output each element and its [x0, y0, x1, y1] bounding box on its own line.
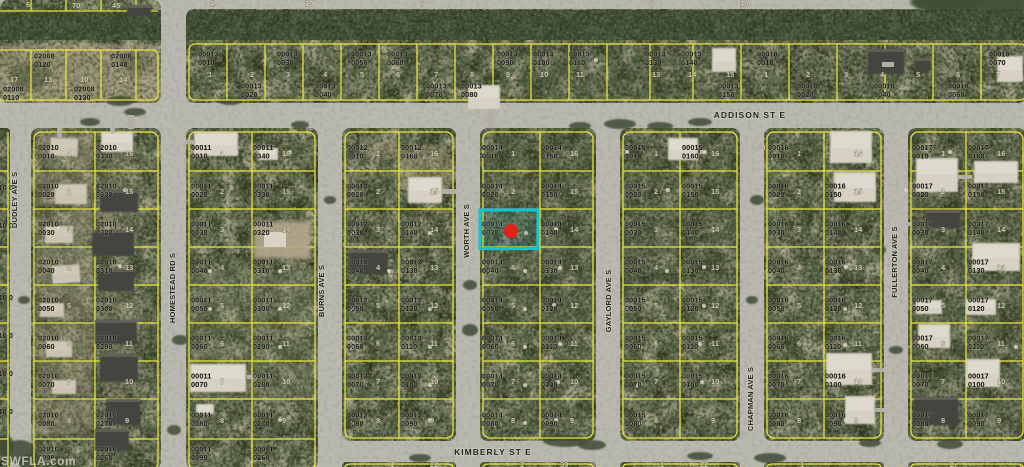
svg-text:0010: 0010	[38, 151, 55, 160]
svg-text:0010: 0010	[191, 151, 208, 160]
svg-text:0060: 0060	[948, 90, 965, 99]
svg-text:11: 11	[576, 70, 584, 79]
svg-text:9: 9	[570, 416, 574, 425]
svg-text:0010: 0010	[482, 151, 499, 160]
svg-text:0040: 0040	[625, 266, 642, 275]
svg-text:0030: 0030	[347, 228, 364, 237]
svg-text:2: 2	[376, 187, 380, 196]
svg-text:0030: 0030	[768, 228, 785, 237]
svg-text:16: 16	[711, 149, 719, 158]
svg-text:0080: 0080	[191, 419, 208, 428]
svg-text:6: 6	[941, 339, 945, 348]
svg-text:13: 13	[711, 263, 719, 272]
svg-text:3: 3	[376, 225, 380, 234]
svg-text:0120: 0120	[401, 304, 418, 313]
svg-text:0110: 0110	[569, 58, 585, 67]
svg-text:2: 2	[511, 187, 515, 196]
svg-text:15: 15	[997, 187, 1005, 196]
svg-text:30: 30	[560, 460, 568, 467]
svg-text:0060: 0060	[38, 342, 55, 351]
svg-text:0060: 0060	[191, 342, 208, 351]
svg-text:0050: 0050	[768, 304, 785, 313]
svg-text:0310: 0310	[253, 266, 270, 275]
svg-text:7: 7	[376, 377, 380, 386]
svg-text:9: 9	[997, 416, 1001, 425]
svg-text:11: 11	[570, 339, 578, 348]
svg-text:14: 14	[119, 75, 128, 84]
svg-text:0020: 0020	[191, 190, 208, 199]
svg-text:0090: 0090	[401, 419, 418, 428]
svg-text:0090: 0090	[968, 419, 985, 428]
svg-text:7: 7	[67, 377, 71, 386]
svg-text:0020: 0020	[38, 190, 55, 199]
svg-text:0300: 0300	[253, 304, 270, 313]
svg-text:11: 11	[125, 339, 133, 348]
svg-text:0160: 0160	[968, 151, 985, 160]
svg-text:0060: 0060	[347, 342, 364, 351]
svg-text:15: 15	[726, 70, 734, 79]
svg-text:13: 13	[125, 263, 133, 272]
svg-text:0120: 0120	[34, 60, 51, 69]
svg-text:70: 70	[72, 1, 80, 10]
svg-text:9: 9	[125, 416, 129, 425]
svg-text:0320: 0320	[96, 228, 113, 237]
svg-text:0080: 0080	[347, 419, 364, 428]
svg-text:15: 15	[282, 187, 290, 196]
svg-text:0120: 0120	[825, 304, 842, 313]
svg-text:6: 6	[420, 0, 424, 8]
svg-text:0080: 0080	[38, 419, 55, 428]
svg-text:13: 13	[997, 263, 1005, 272]
svg-text:0290: 0290	[253, 342, 270, 351]
svg-text:0040: 0040	[347, 266, 364, 275]
svg-text:02010 0: 02010 0	[0, 331, 13, 340]
svg-text:0040: 0040	[912, 266, 929, 275]
svg-text:16: 16	[997, 149, 1005, 158]
svg-text:10: 10	[570, 377, 578, 386]
svg-text:0130: 0130	[401, 266, 418, 275]
svg-text:0140: 0140	[968, 228, 985, 237]
svg-text:8: 8	[67, 416, 71, 425]
svg-text:1: 1	[660, 460, 664, 467]
svg-text:22: 22	[700, 460, 708, 467]
svg-text:0050: 0050	[38, 304, 55, 313]
svg-text:0010: 0010	[768, 151, 785, 160]
svg-text:0050: 0050	[912, 304, 929, 313]
svg-text:11: 11	[282, 339, 290, 348]
svg-text:6: 6	[511, 339, 515, 348]
svg-text:DUDLEY AVE S: DUDLEY AVE S	[10, 172, 19, 228]
svg-text:1: 1	[67, 149, 71, 158]
svg-text:0010: 0010	[198, 58, 215, 67]
svg-text:0270: 0270	[253, 419, 270, 428]
svg-text:0140: 0140	[541, 228, 558, 237]
svg-text:0130: 0130	[825, 266, 842, 275]
svg-text:8: 8	[650, 0, 654, 8]
svg-text:9: 9	[711, 416, 715, 425]
svg-text:0040: 0040	[768, 266, 785, 275]
svg-text:0310: 0310	[96, 266, 113, 275]
svg-text:14: 14	[125, 225, 134, 234]
svg-text:8: 8	[470, 70, 474, 79]
svg-text:0140: 0140	[825, 228, 842, 237]
svg-text:0330: 0330	[96, 190, 113, 199]
svg-text:45: 45	[112, 1, 120, 10]
svg-text:10: 10	[430, 377, 438, 386]
svg-text:6: 6	[797, 339, 801, 348]
svg-text:KIMBERLY ST E: KIMBERLY ST E	[454, 447, 532, 457]
svg-text:2: 2	[67, 187, 71, 196]
svg-text:0260: 0260	[96, 453, 113, 462]
svg-text:7: 7	[797, 377, 801, 386]
svg-text:6: 6	[26, 0, 30, 9]
svg-text:0090: 0090	[541, 419, 558, 428]
svg-text:0160: 0160	[401, 151, 418, 160]
svg-text:0050: 0050	[351, 58, 368, 67]
svg-text:5: 5	[67, 301, 71, 310]
svg-text:0080: 0080	[482, 419, 499, 428]
svg-text:0260: 0260	[253, 453, 270, 462]
svg-text:10: 10	[282, 377, 290, 386]
svg-text:ADDISON ST E: ADDISON ST E	[714, 110, 786, 120]
svg-text:9: 9	[506, 70, 510, 79]
svg-text:0020: 0020	[482, 190, 499, 199]
svg-text:0030: 0030	[912, 228, 929, 237]
svg-text:1: 1	[390, 460, 394, 467]
svg-text:0120: 0120	[682, 304, 699, 313]
svg-text:1: 1	[220, 149, 224, 158]
svg-text:9: 9	[854, 416, 858, 425]
svg-text:0100: 0100	[682, 380, 699, 389]
svg-text:0070: 0070	[191, 380, 208, 389]
svg-text:0100: 0100	[533, 58, 550, 67]
svg-text:0020: 0020	[912, 190, 929, 199]
svg-text:0130: 0130	[645, 58, 662, 67]
svg-text:10: 10	[305, 0, 313, 8]
svg-text:0020: 0020	[347, 190, 364, 199]
svg-text:5: 5	[654, 301, 658, 310]
svg-text:0160: 0160	[682, 151, 699, 160]
svg-text:14: 14	[854, 225, 863, 234]
svg-text:0090: 0090	[497, 58, 514, 67]
svg-text:0030: 0030	[625, 228, 642, 237]
svg-text:11: 11	[997, 339, 1005, 348]
svg-text:15: 15	[570, 187, 578, 196]
svg-text:0010: 0010	[625, 151, 642, 160]
svg-text:0090: 0090	[825, 419, 842, 428]
svg-text:GAYLORD AVE S: GAYLORD AVE S	[604, 270, 613, 333]
svg-text:0070: 0070	[347, 380, 364, 389]
svg-text:3: 3	[67, 225, 71, 234]
svg-text:9: 9	[430, 416, 434, 425]
svg-text:1: 1	[764, 70, 768, 79]
svg-text:0060: 0060	[387, 58, 404, 67]
svg-text:1: 1	[654, 149, 658, 158]
svg-text:17: 17	[10, 75, 18, 84]
svg-text:0150: 0150	[718, 90, 735, 99]
svg-text:8: 8	[220, 416, 224, 425]
svg-text:0030: 0030	[277, 58, 294, 67]
svg-text:0340: 0340	[96, 151, 113, 160]
svg-text:0050: 0050	[191, 304, 208, 313]
svg-text:3: 3	[220, 225, 224, 234]
svg-text:10: 10	[740, 0, 748, 8]
svg-text:9: 9	[282, 416, 286, 425]
svg-text:14: 14	[282, 225, 291, 234]
svg-text:1: 1	[511, 149, 515, 158]
svg-text:5: 5	[220, 301, 224, 310]
svg-text:7: 7	[996, 70, 1000, 79]
svg-text:0080: 0080	[461, 90, 478, 99]
svg-text:7: 7	[220, 377, 224, 386]
svg-text:3: 3	[797, 225, 801, 234]
svg-text:6: 6	[220, 339, 224, 348]
svg-text:5: 5	[941, 301, 945, 310]
svg-text:10: 10	[997, 377, 1005, 386]
svg-text:2: 2	[950, 460, 954, 467]
svg-text:14: 14	[688, 70, 697, 79]
svg-text:0060: 0060	[912, 342, 929, 351]
svg-text:1: 1	[208, 70, 212, 79]
svg-text:11: 11	[430, 339, 438, 348]
svg-text:5: 5	[360, 70, 364, 79]
svg-text:12: 12	[570, 301, 578, 310]
svg-text:5: 5	[376, 301, 380, 310]
svg-text:0120: 0120	[968, 304, 985, 313]
svg-text:3: 3	[286, 70, 290, 79]
svg-text:5: 5	[511, 301, 515, 310]
svg-text:5: 5	[797, 301, 801, 310]
svg-text:0070: 0070	[482, 380, 499, 389]
svg-text:13: 13	[282, 263, 290, 272]
svg-text:12: 12	[125, 301, 133, 310]
svg-text:0140: 0140	[682, 228, 699, 237]
svg-text:16: 16	[282, 149, 290, 158]
svg-text:0040: 0040	[38, 266, 55, 275]
svg-text:02010 0: 02010 0	[0, 369, 13, 378]
svg-text:0110: 0110	[541, 342, 557, 351]
svg-text:0100: 0100	[401, 380, 418, 389]
svg-text:0020: 0020	[797, 90, 814, 99]
svg-text:0270: 0270	[96, 419, 113, 428]
svg-text:6: 6	[67, 339, 71, 348]
svg-text:2: 2	[797, 187, 801, 196]
svg-text:2: 2	[220, 187, 224, 196]
svg-text:12: 12	[711, 301, 719, 310]
svg-text:2: 2	[941, 187, 945, 196]
svg-text:8: 8	[376, 416, 380, 425]
svg-text:1: 1	[800, 460, 804, 467]
svg-text:2: 2	[250, 70, 254, 79]
svg-text:16: 16	[125, 149, 133, 158]
svg-text:0150: 0150	[682, 190, 699, 199]
svg-text:13: 13	[430, 263, 438, 272]
svg-text:02010 0: 02010 0	[0, 293, 13, 302]
svg-text:15: 15	[125, 187, 133, 196]
svg-text:0110: 0110	[401, 342, 417, 351]
svg-text:0050: 0050	[347, 304, 364, 313]
svg-text:0020: 0020	[768, 190, 785, 199]
svg-text:0150: 0150	[825, 190, 842, 199]
svg-text:0030: 0030	[38, 228, 55, 237]
svg-text:0130: 0130	[682, 266, 699, 275]
svg-text:HOMESTEAD RD S: HOMESTEAD RD S	[168, 253, 177, 323]
svg-text:3: 3	[941, 225, 945, 234]
svg-text:13: 13	[44, 75, 52, 84]
svg-text:0320: 0320	[253, 228, 270, 237]
svg-text:0130: 0130	[968, 266, 985, 275]
svg-text:8: 8	[654, 416, 658, 425]
svg-text:0010: 0010	[347, 151, 364, 160]
svg-text:8: 8	[797, 416, 801, 425]
svg-text:22: 22	[430, 460, 438, 467]
svg-text:12: 12	[430, 301, 438, 310]
svg-text:16: 16	[570, 149, 578, 158]
svg-text:13: 13	[652, 70, 660, 79]
svg-text:14: 14	[570, 225, 579, 234]
svg-text:1: 1	[520, 460, 524, 467]
svg-text:02010 0: 02010 0	[0, 407, 13, 416]
svg-text:16: 16	[854, 149, 862, 158]
svg-text:10: 10	[711, 377, 719, 386]
svg-text:0080: 0080	[768, 419, 785, 428]
svg-text:0040: 0040	[482, 266, 499, 275]
svg-text:0140: 0140	[401, 228, 418, 237]
svg-text:0050: 0050	[625, 304, 642, 313]
svg-text:0100: 0100	[968, 380, 985, 389]
svg-text:0340: 0340	[253, 151, 270, 160]
svg-text:15: 15	[854, 187, 862, 196]
svg-text:0020: 0020	[625, 190, 642, 199]
svg-text:2: 2	[654, 187, 658, 196]
svg-text:0070: 0070	[768, 380, 785, 389]
svg-text:10: 10	[125, 377, 133, 386]
svg-text:3: 3	[654, 225, 658, 234]
svg-text:0090: 0090	[191, 453, 208, 462]
svg-text:BURNS AVE S: BURNS AVE S	[317, 265, 326, 317]
svg-text:13: 13	[570, 263, 578, 272]
svg-text:SWFLA.com: SWFLA.com	[1, 454, 76, 467]
svg-text:12: 12	[282, 301, 290, 310]
svg-text:1: 1	[797, 149, 801, 158]
svg-text:0150: 0150	[968, 190, 985, 199]
svg-text:8: 8	[511, 416, 515, 425]
svg-text:0020: 0020	[241, 90, 258, 99]
svg-text:0080: 0080	[625, 419, 642, 428]
svg-text:0040: 0040	[874, 90, 891, 99]
svg-text:6: 6	[376, 339, 380, 348]
svg-text:2: 2	[806, 70, 810, 79]
svg-text:0040: 0040	[191, 266, 208, 275]
svg-text:0120: 0120	[541, 304, 558, 313]
svg-text:0110: 0110	[825, 342, 841, 351]
svg-text:WORTH AVE S: WORTH AVE S	[462, 204, 471, 258]
svg-text:0140: 0140	[681, 58, 698, 67]
svg-text:10: 10	[854, 377, 862, 386]
svg-text:0130: 0130	[541, 266, 558, 275]
svg-text:FULLERTON AVE S: FULLERTON AVE S	[890, 226, 899, 297]
svg-text:0100: 0100	[825, 380, 842, 389]
svg-text:0060: 0060	[768, 342, 785, 351]
svg-text:10: 10	[540, 70, 548, 79]
svg-text:5: 5	[916, 70, 920, 79]
svg-text:7: 7	[654, 377, 658, 386]
svg-text:0130: 0130	[74, 93, 91, 102]
svg-text:15: 15	[430, 187, 438, 196]
svg-text:0110: 0110	[3, 93, 19, 102]
svg-text:0300: 0300	[96, 304, 113, 313]
svg-text:0110: 0110	[968, 342, 984, 351]
svg-text:0050: 0050	[482, 304, 499, 313]
svg-text:0010: 0010	[757, 58, 774, 67]
svg-text:0110: 0110	[682, 342, 698, 351]
svg-text:6: 6	[956, 70, 960, 79]
svg-text:0140: 0140	[111, 60, 128, 69]
svg-text:14: 14	[711, 225, 720, 234]
svg-text:12: 12	[997, 301, 1005, 310]
svg-text:1: 1	[376, 149, 380, 158]
svg-text:CHAPMAN AVE S: CHAPMAN AVE S	[746, 367, 755, 431]
svg-text:0060: 0060	[625, 342, 642, 351]
svg-text:0290: 0290	[96, 342, 113, 351]
svg-text:0060: 0060	[482, 342, 499, 351]
svg-text:3: 3	[844, 70, 848, 79]
svg-text:11: 11	[854, 339, 862, 348]
svg-text:0160: 0160	[541, 151, 558, 160]
svg-text:6: 6	[396, 70, 400, 79]
svg-text:0150: 0150	[541, 190, 558, 199]
svg-text:7: 7	[511, 377, 515, 386]
svg-text:10: 10	[80, 75, 88, 84]
svg-text:14: 14	[430, 225, 439, 234]
svg-text:0330: 0330	[253, 190, 270, 199]
svg-text:0100: 0100	[541, 380, 558, 389]
svg-text:0070: 0070	[912, 380, 929, 389]
svg-text:13: 13	[854, 263, 862, 272]
svg-text:6: 6	[654, 339, 658, 348]
svg-text:0070: 0070	[38, 380, 55, 389]
svg-text:12: 12	[854, 301, 862, 310]
svg-text:0070: 0070	[625, 380, 642, 389]
svg-text:0070: 0070	[989, 58, 1006, 67]
svg-text:7: 7	[434, 70, 438, 79]
svg-text:0040: 0040	[315, 90, 332, 99]
svg-text:15: 15	[711, 187, 719, 196]
svg-text:0080: 0080	[912, 419, 929, 428]
svg-text:16: 16	[430, 149, 438, 158]
svg-text:14: 14	[997, 225, 1006, 234]
svg-text:0280: 0280	[253, 380, 270, 389]
svg-text:7: 7	[941, 377, 945, 386]
svg-text:0070: 0070	[426, 90, 443, 99]
svg-text:0010: 0010	[912, 151, 929, 160]
svg-text:11: 11	[711, 339, 719, 348]
svg-text:1: 1	[941, 149, 945, 158]
svg-text:0030: 0030	[191, 228, 208, 237]
svg-text:8: 8	[941, 416, 945, 425]
